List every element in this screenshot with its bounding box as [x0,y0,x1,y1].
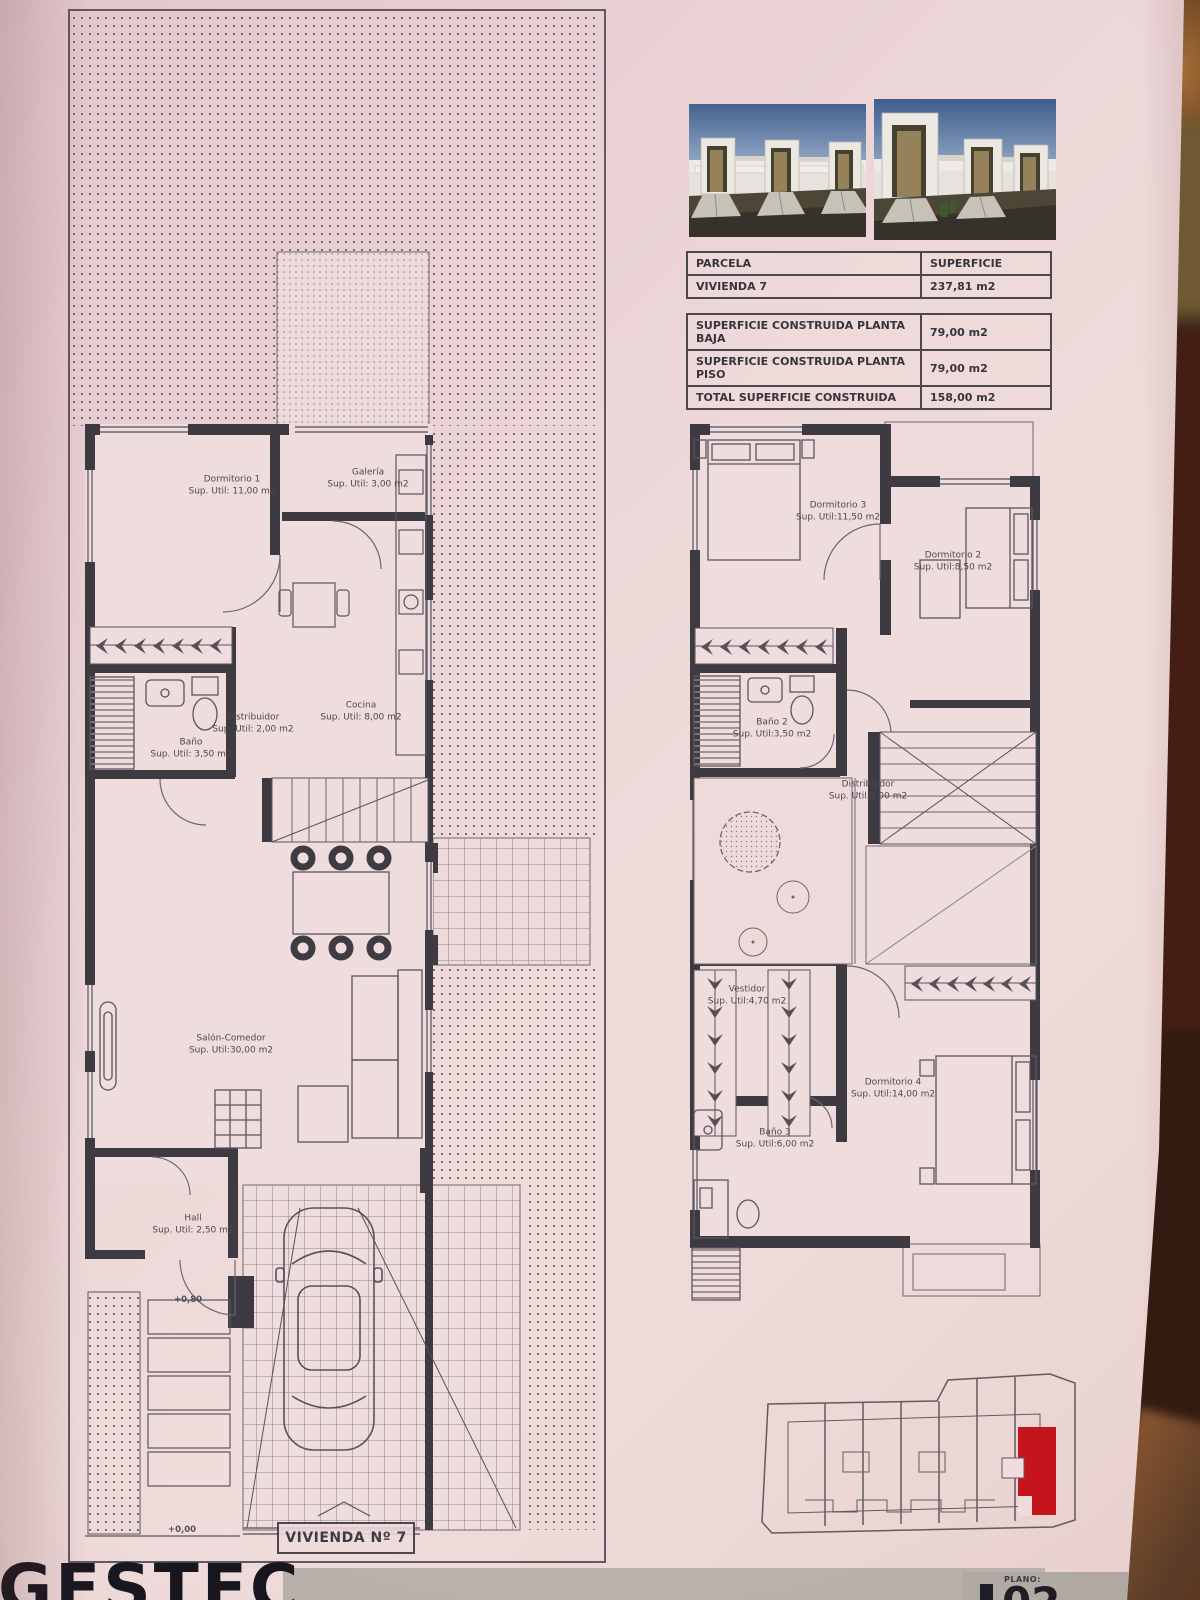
wardrobe-dorm3 [695,628,833,664]
site-key-plan [742,1360,1078,1538]
stairs [272,778,428,842]
room-label-cocina: Cocina Sup. Util: 8,00 m2 [320,700,401,723]
gestec-logo: GESTEC [0,1550,301,1600]
parcela-table: PARCELA SUPERFICIE VIVIENDA 7 237,81 m2 [686,251,1052,299]
room-label-dormitorio3: Dormitorio 3 Sup. Util:11,50 m2 [796,500,880,523]
patio-column-hatch [277,252,429,426]
summary-tables: PARCELA SUPERFICIE VIVIENDA 7 237,81 m2 … [686,251,1052,424]
room-label-dormitorio4: Dormitorio 4 Sup. Util:14,00 m2 [851,1077,935,1100]
level-mark-plus000: +0,00 [168,1525,196,1535]
room-label-distribuidor: Distribuidor Sup. Util: 2,00 m2 [212,712,293,735]
vivienda-cell: VIVIENDA 7 [687,275,921,298]
courtyard [694,778,855,964]
room-label-dormitorio2: Dormitorio 2 Sup. Util:8,50 m2 [914,550,992,573]
render-thumbnail-2 [874,99,1056,240]
room-label-bano3: Baño 3 Sup. Util:6,00 m2 [736,1127,814,1150]
vivienda-area-cell: 237,81 m2 [921,275,1051,298]
room-label-galeria: Galería Sup. Util: 3,00 m2 [327,467,408,490]
titleblock-band [283,1568,1045,1600]
surface-row-label: SUPERFICIE CONSTRUIDA PLANTA PISO [687,350,921,386]
surface-row-value: 158,00 m2 [921,386,1051,409]
photographed-plan-sheet: PARCELA SUPERFICIE VIVIENDA 7 237,81 m2 … [0,0,1200,1600]
room-label-bano: Baño Sup. Util: 3,50 m2 [150,737,231,760]
plano-number: 02 [1002,1582,1060,1600]
surface-row-value: 79,00 m2 [921,314,1051,350]
surface-row-label: TOTAL SUPERFICIE CONSTRUIDA [687,386,921,409]
parcela-header: PARCELA [687,252,921,275]
surface-row-label: SUPERFICIE CONSTRUIDA PLANTA BAJA [687,314,921,350]
entrance-terrace [85,1292,240,1536]
balcony [903,1244,1040,1296]
tiled-patio [433,838,590,965]
ground-floor-plan-drawing [60,5,615,1570]
tree-large [720,812,780,872]
room-label-salon-comedor: Salón-Comedor Sup. Util:30,00 m2 [189,1033,273,1056]
level-mark-plus080: +0,80 [174,1295,202,1305]
plano-partial-glyph [980,1584,993,1600]
room-label-vestidor: Vestidor Sup. Util:4,70 m2 [708,984,786,1007]
paper-sheet: PARCELA SUPERFICIE VIVIENDA 7 237,81 m2 … [0,0,1200,1600]
room-label-bano2: Baño 2 Sup. Util:3,50 m2 [733,717,811,740]
superficie-header: SUPERFICIE [921,252,1051,275]
room-label-dormitorio1: Dormitorio 1 Sup. Util: 11,00 m2 [189,474,276,497]
surface-row-value: 79,00 m2 [921,350,1051,386]
room-label-distribuidor-p1: Distribuidor Sup. Util:5,00 m2 [829,779,907,802]
upper-terrace [885,422,1033,480]
wardrobe [90,627,232,664]
superficie-table: SUPERFICIE CONSTRUIDA PLANTA BAJA 79,00 … [686,313,1052,410]
upper-floor-plan-drawing [675,415,1050,1310]
render-thumbnail-1 [689,104,866,237]
room-label-hall: Hall Sup. Util: 2,50 m2 [152,1213,233,1236]
